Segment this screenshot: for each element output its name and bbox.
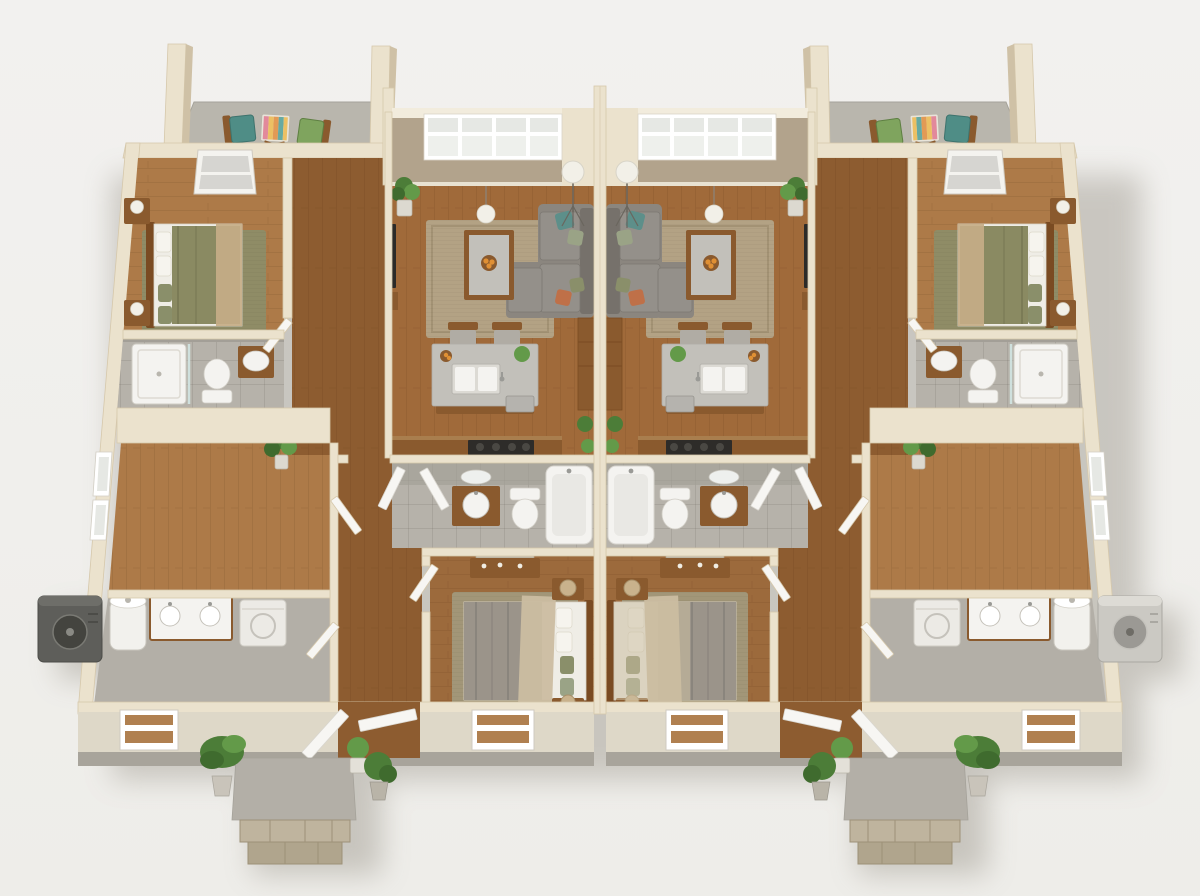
bed-front bbox=[146, 222, 242, 328]
floor-plan-render bbox=[0, 0, 1200, 896]
unit-b-bed-beige-overlay bbox=[614, 602, 690, 700]
double-sink-vanity bbox=[150, 596, 232, 640]
unit-a bbox=[78, 44, 595, 864]
throw-pillow bbox=[554, 289, 572, 307]
island-with-double-sink bbox=[432, 344, 538, 414]
dishwasher bbox=[506, 396, 534, 412]
nightstand-woven-lamp bbox=[552, 578, 584, 600]
nightstand-with-lamp bbox=[124, 300, 150, 326]
oval-mirror bbox=[461, 470, 491, 484]
water-heater bbox=[110, 594, 146, 650]
party-wall bbox=[594, 86, 606, 714]
coffee-table bbox=[464, 230, 514, 300]
rear-exterior-wall bbox=[78, 702, 594, 766]
toilet bbox=[510, 488, 540, 529]
ac-condenser-dark bbox=[38, 596, 102, 662]
skylight-window bbox=[194, 150, 256, 194]
potted-plant bbox=[581, 439, 595, 453]
rear-window bbox=[120, 710, 178, 750]
dining-chair bbox=[492, 322, 522, 346]
fruit-bowl bbox=[483, 258, 488, 263]
toilet bbox=[202, 359, 232, 403]
throw-pillow bbox=[567, 229, 584, 246]
tall-cabinet bbox=[578, 318, 594, 410]
patio-chair bbox=[222, 113, 256, 144]
potted-plant bbox=[577, 416, 593, 432]
herb-plant bbox=[514, 346, 530, 362]
stone-steps bbox=[240, 820, 350, 864]
nightstand-with-lamp bbox=[124, 198, 150, 224]
bathtub bbox=[546, 466, 592, 544]
unit-b bbox=[605, 44, 1122, 864]
bed-center bbox=[464, 595, 593, 706]
transom-window-band bbox=[424, 114, 562, 160]
dining-chair bbox=[448, 322, 478, 346]
washer bbox=[240, 600, 286, 646]
throw-pillow bbox=[569, 277, 585, 293]
ac-condenser-light bbox=[1098, 596, 1162, 662]
rear-window bbox=[472, 710, 534, 750]
